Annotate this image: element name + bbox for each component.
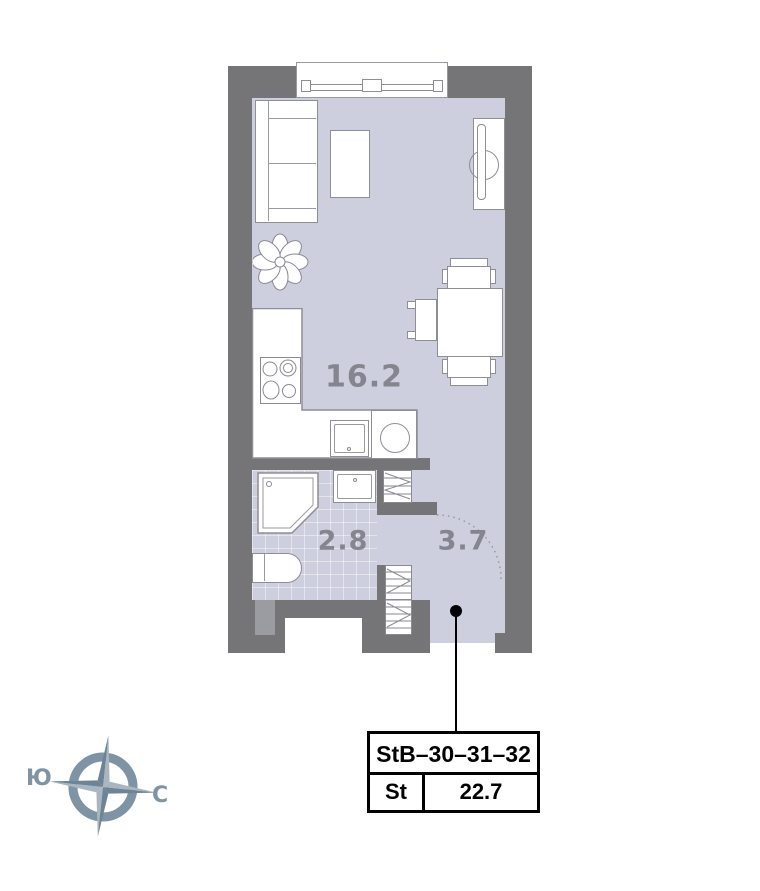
toilet-tank-line [264,554,265,581]
bathroom-sink-drain [353,478,357,482]
floor-entrance-recess [430,613,505,643]
toilet [252,553,302,583]
chair-left-seat [415,299,437,341]
floorplan-page: 16.2 2.8 3.7 StB–30–31–32 St 22.7 Ю С [0,0,760,891]
chair-bottom-seat [447,356,491,378]
tv-unit [473,118,505,210]
chair-top-seat [447,266,491,289]
unit-total-area: 22.7 [425,775,537,810]
desk [330,130,370,198]
plant-icon [253,228,311,296]
facade-niche [285,618,362,653]
window-mullion [362,79,382,92]
sofa [255,100,318,223]
sofa-divider-1 [268,118,316,119]
window-frame-cap-right [433,80,443,92]
sofa-divider-3 [268,208,316,209]
washing-machine-drum [380,423,410,453]
window-frame-cap-left [301,80,311,92]
chair-bottom-backrest [450,377,488,386]
sofa-divider-2 [268,163,316,164]
closet-bottom [385,565,412,635]
washing-machine [371,410,417,459]
sofa-backrest-line [268,101,269,221]
kitchen-sink [330,420,369,457]
stove [260,357,301,404]
closet-top [383,470,412,503]
shower [257,472,319,534]
room-area-hall: 3.7 [438,526,489,557]
tv-panel [477,124,486,200]
room-area-bathroom: 2.8 [318,526,369,557]
wall-kitchen-bath-divider [252,458,430,470]
dining-table [437,288,503,357]
leader-line [455,611,457,731]
unit-card[interactable]: StB–30–31–32 St 22.7 [367,731,540,813]
wall-entrance-corner [495,633,532,653]
unit-type: St [370,775,425,810]
compass-north-label: С [152,783,168,808]
room-area-living: 16.2 [325,360,403,395]
kitchen-sink-drain [347,447,351,451]
entrance-door-opening [430,643,495,653]
unit-code: StB–30–31–32 [370,734,537,775]
bathroom-sink [333,470,376,503]
compass-south-label: Ю [26,766,52,791]
shaft-block [255,600,275,635]
